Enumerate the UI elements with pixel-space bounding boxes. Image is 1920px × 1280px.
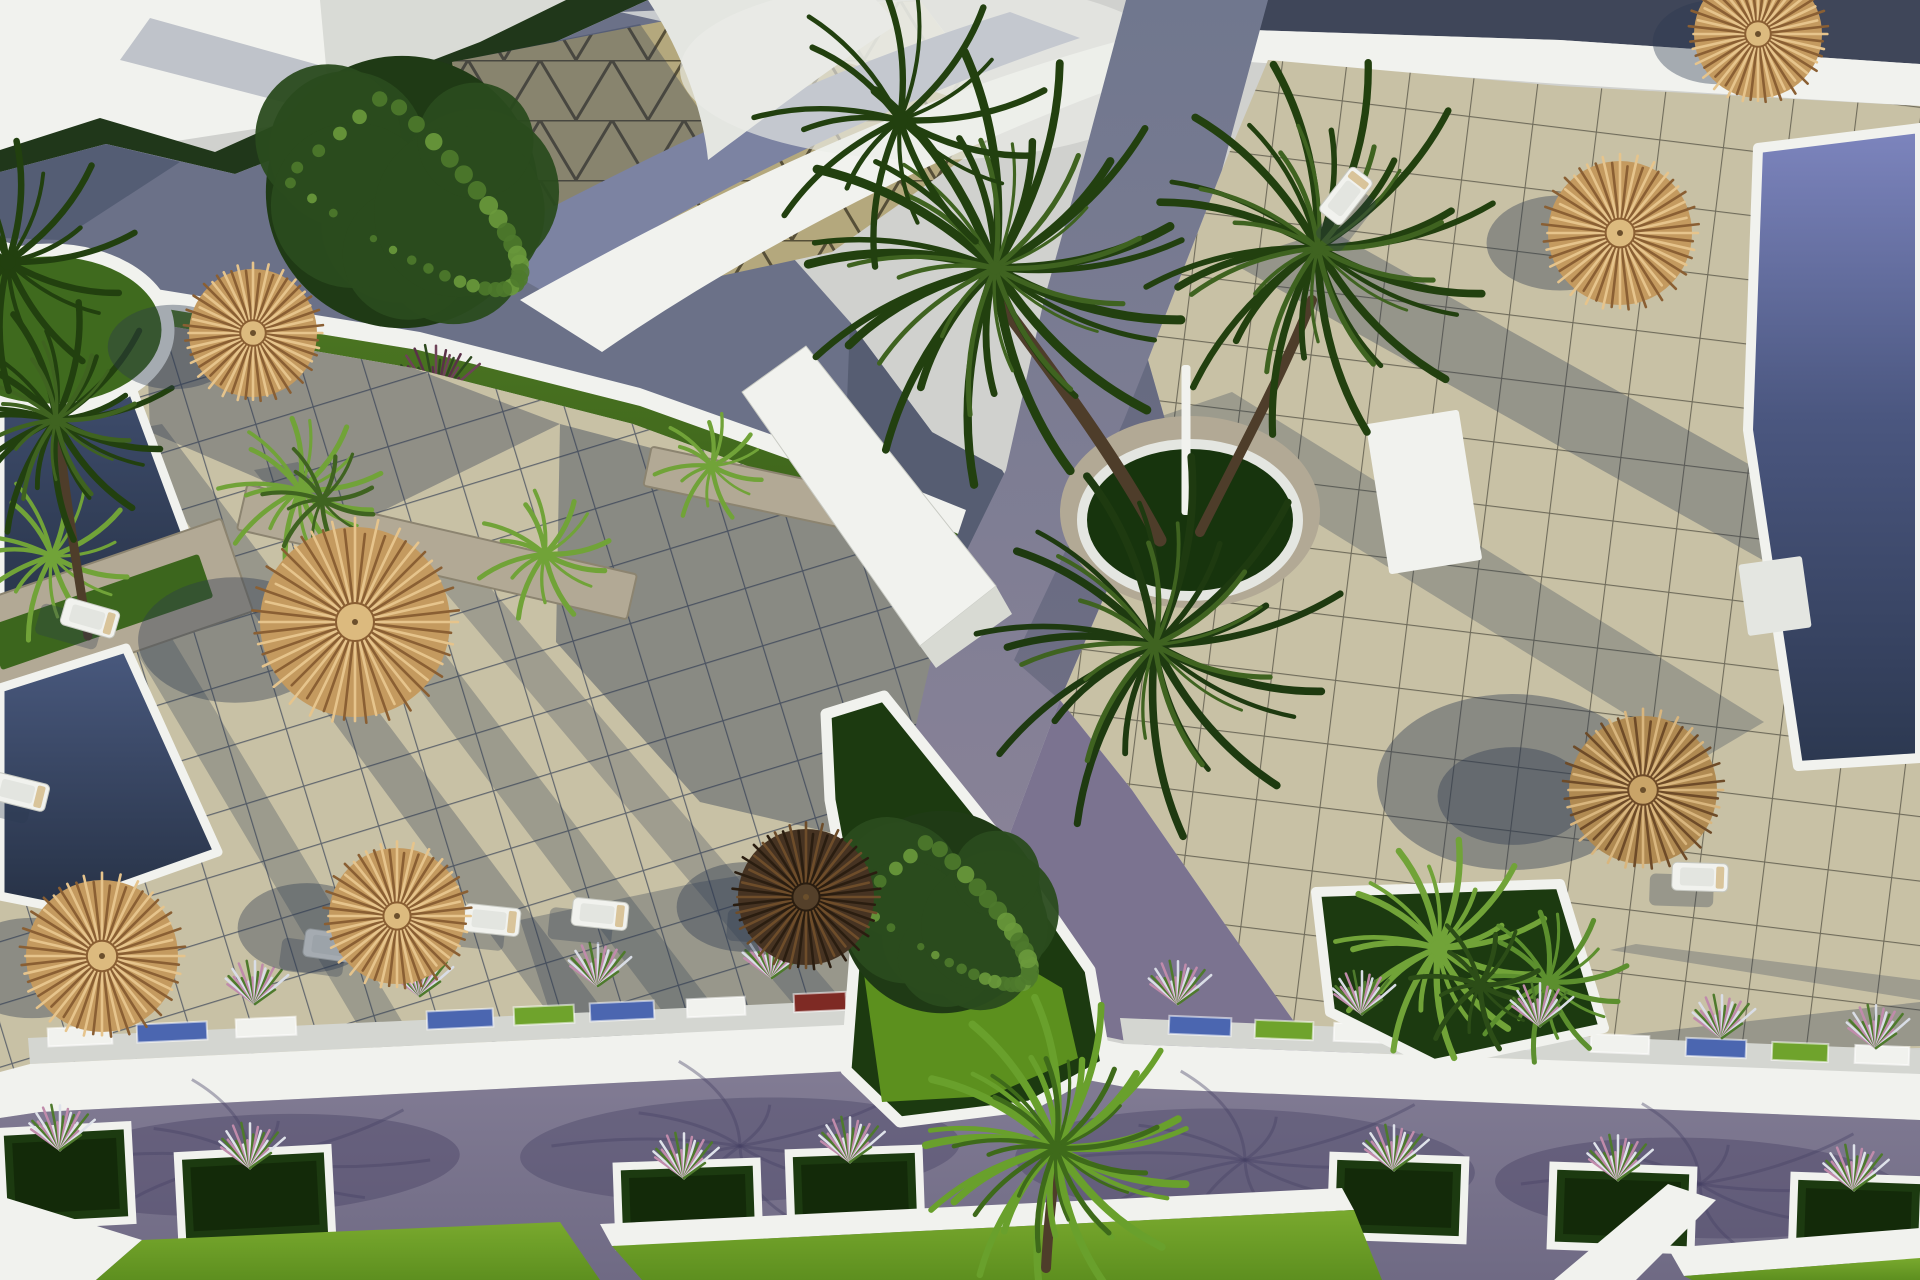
mosaic-segment <box>590 1001 655 1022</box>
mosaic-segment <box>1591 1034 1650 1054</box>
mosaic-segment <box>1255 1020 1314 1040</box>
pool-step <box>1738 556 1811 636</box>
aerial-resort-render <box>0 0 1920 1280</box>
mosaic-segment <box>137 1021 208 1042</box>
mosaic-segment <box>514 1005 575 1026</box>
mosaic-segment <box>236 1017 297 1038</box>
mosaic-segment <box>794 992 847 1012</box>
mosaic-segment <box>427 1009 494 1030</box>
mosaic-segment <box>1169 1016 1232 1036</box>
mosaic-segment <box>1772 1042 1829 1062</box>
resort-scene <box>0 0 1920 1280</box>
mosaic-segment <box>1855 1045 1910 1065</box>
mosaic-segment <box>687 997 746 1018</box>
mosaic-segment <box>1686 1038 1747 1058</box>
